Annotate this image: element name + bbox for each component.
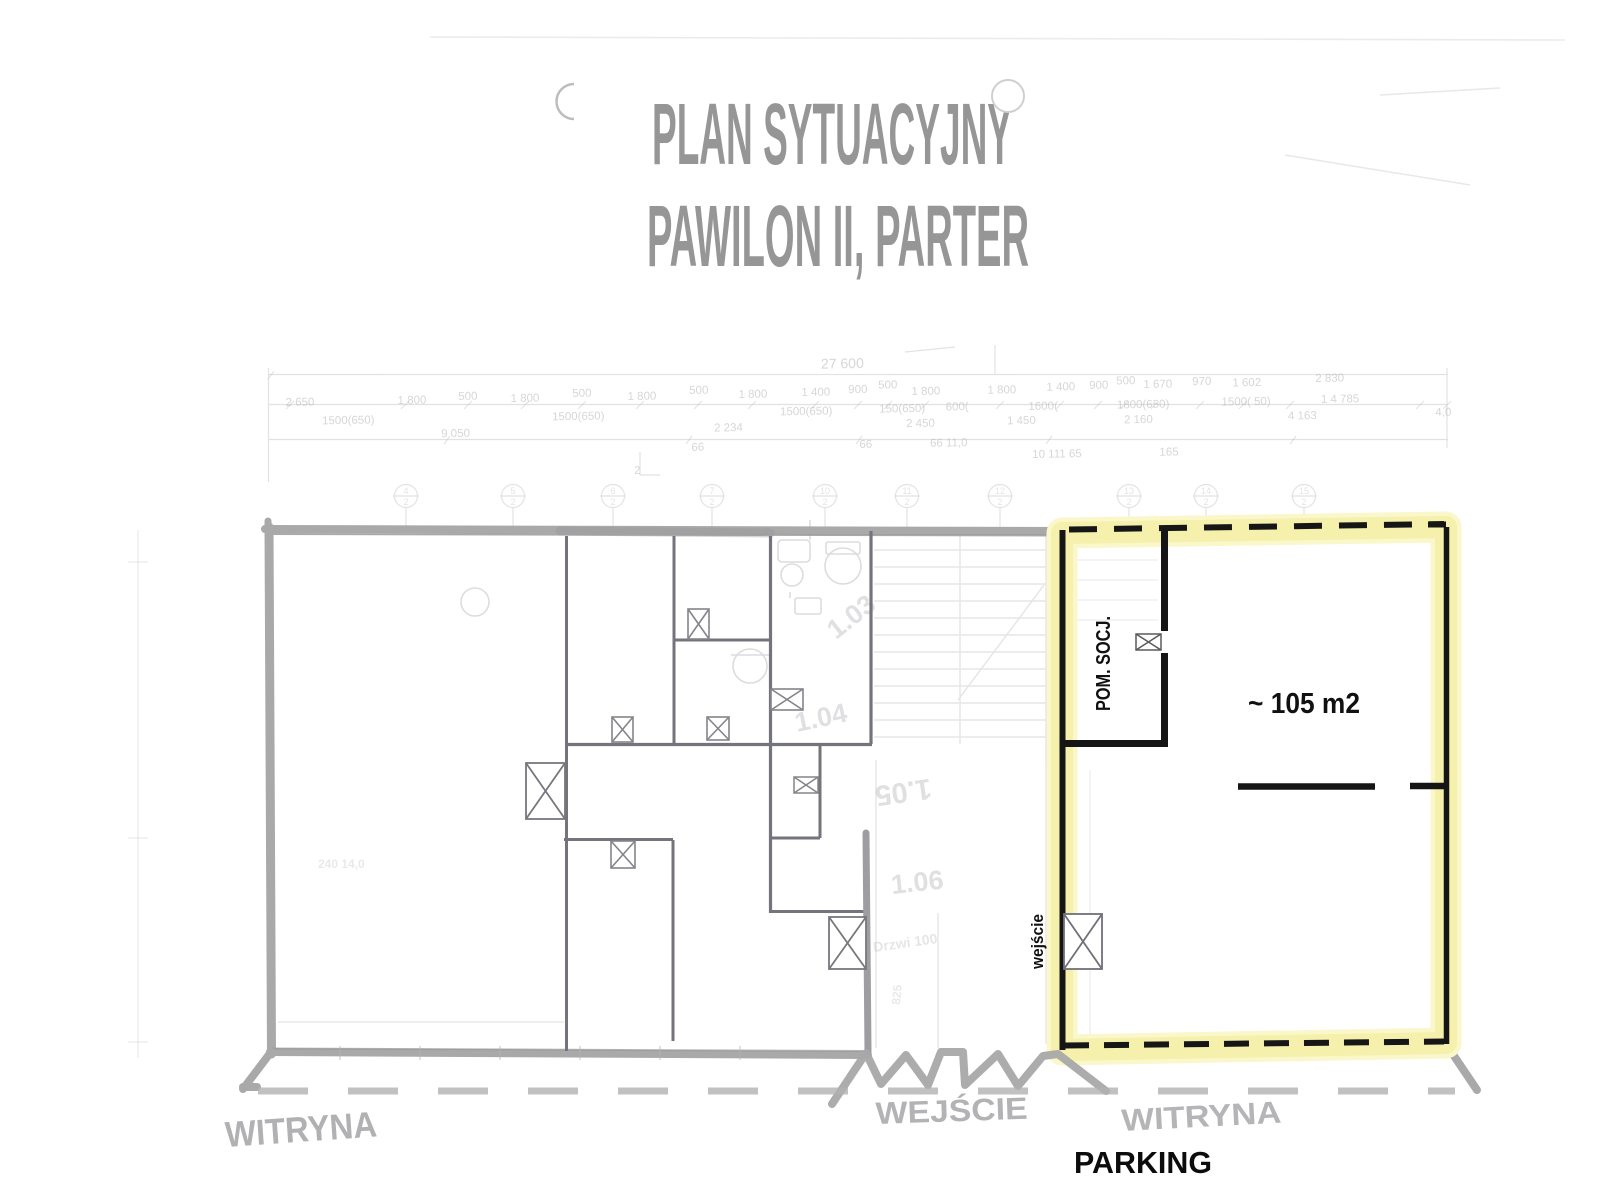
svg-text:2: 2 (904, 497, 909, 507)
svg-text:66: 66 (691, 442, 704, 454)
svg-text:14: 14 (1201, 486, 1211, 496)
svg-text:240 14,0: 240 14,0 (318, 857, 365, 871)
svg-text:1 800: 1 800 (987, 384, 1016, 397)
svg-text:PARKING: PARKING (1074, 1145, 1212, 1180)
svg-text:2: 2 (610, 497, 615, 507)
svg-text:1 800: 1 800 (911, 386, 940, 399)
svg-text:15: 15 (1299, 486, 1309, 496)
svg-text:27 600: 27 600 (821, 355, 864, 372)
svg-text:1500(650): 1500(650) (780, 405, 833, 418)
svg-text:825: 825 (889, 984, 905, 1005)
svg-text:WITRYNA: WITRYNA (224, 1103, 378, 1155)
svg-text:1 400: 1 400 (801, 386, 830, 399)
svg-text:1 450: 1 450 (1007, 415, 1036, 428)
svg-text:2: 2 (1126, 497, 1131, 507)
svg-text:1 800: 1 800 (627, 391, 656, 404)
svg-text:900: 900 (848, 384, 867, 396)
svg-text:PLAN SYTUACYJNY: PLAN SYTUACYJNY (652, 86, 1012, 183)
svg-text:2: 2 (709, 497, 714, 507)
svg-text:10 111 65: 10 111 65 (1032, 448, 1082, 461)
svg-text:2: 2 (510, 497, 515, 507)
svg-text:66: 66 (859, 439, 872, 451)
svg-text:4: 4 (403, 486, 408, 496)
svg-text:1 602: 1 602 (1232, 377, 1261, 390)
svg-text:Drzwi 100: Drzwi 100 (872, 930, 938, 955)
svg-text:970: 970 (1192, 376, 1211, 388)
svg-text:2 160: 2 160 (1124, 414, 1153, 427)
svg-text:1800(650): 1800(650) (1117, 399, 1170, 412)
svg-text:1500(650): 1500(650) (322, 414, 375, 427)
svg-text:9 050: 9 050 (441, 428, 470, 441)
svg-text:7: 7 (709, 486, 714, 496)
svg-text:1.06: 1.06 (889, 865, 944, 900)
svg-text:150(650): 150(650) (879, 403, 925, 416)
svg-text:1.05: 1.05 (873, 772, 933, 812)
svg-text:1500(650): 1500(650) (552, 410, 605, 423)
svg-text:6: 6 (610, 486, 615, 496)
svg-text:2: 2 (1203, 497, 1208, 507)
svg-text:1 670: 1 670 (1143, 379, 1172, 392)
svg-text:2: 2 (997, 497, 1002, 507)
svg-text:1 800: 1 800 (510, 393, 539, 406)
svg-text:2 830: 2 830 (1315, 373, 1344, 386)
svg-text:10: 10 (820, 486, 830, 496)
svg-text:500: 500 (878, 379, 897, 391)
svg-text:13: 13 (1124, 486, 1134, 496)
svg-text:1600(: 1600( (1028, 400, 1058, 413)
svg-text:66 11,0: 66 11,0 (930, 437, 968, 450)
svg-text:~ 105 m2: ~ 105 m2 (1248, 688, 1360, 720)
svg-text:4 163: 4 163 (1288, 410, 1317, 423)
svg-text:500: 500 (458, 391, 477, 403)
svg-text:wejście: wejście (1029, 914, 1047, 970)
svg-text:1 4 785: 1 4 785 (1321, 393, 1360, 406)
svg-text:5: 5 (510, 486, 515, 496)
svg-text:4,0: 4,0 (1435, 407, 1451, 419)
svg-text:1 800: 1 800 (738, 389, 767, 402)
svg-text:2: 2 (1301, 497, 1306, 507)
svg-text:12: 12 (995, 486, 1005, 496)
svg-text:2 234: 2 234 (714, 422, 744, 435)
svg-text:PAWILON II, PARTER: PAWILON II, PARTER (647, 188, 1029, 285)
svg-text:165: 165 (1159, 446, 1178, 458)
svg-text:11: 11 (902, 486, 911, 496)
svg-text:1500( 50): 1500( 50) (1221, 396, 1271, 409)
svg-text:900: 900 (1089, 380, 1108, 392)
svg-text:500: 500 (689, 385, 708, 397)
svg-text:POM. SOCJ.: POM. SOCJ. (1093, 616, 1115, 711)
svg-text:2 650: 2 650 (285, 396, 314, 409)
svg-text:500: 500 (1116, 375, 1135, 387)
svg-text:WEJŚCIE: WEJŚCIE (875, 1090, 1028, 1131)
svg-text:500: 500 (572, 388, 591, 400)
svg-text:600(: 600( (946, 401, 969, 413)
svg-text:2: 2 (403, 497, 408, 507)
svg-text:1 400: 1 400 (1046, 381, 1075, 394)
svg-text:1 800: 1 800 (397, 395, 426, 408)
svg-text:2: 2 (822, 497, 827, 507)
svg-text:2 450: 2 450 (906, 418, 935, 431)
svg-text:2: 2 (634, 465, 640, 477)
svg-text:WITRYNA: WITRYNA (1121, 1095, 1283, 1138)
